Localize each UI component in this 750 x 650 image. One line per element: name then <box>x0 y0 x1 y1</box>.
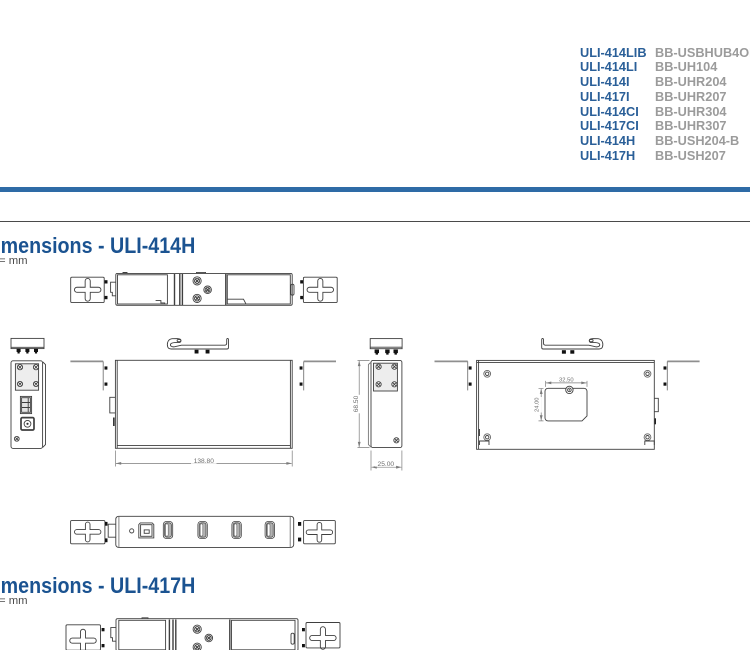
svg-text:138.80: 138.80 <box>194 458 215 465</box>
svg-text:32.50: 32.50 <box>559 378 574 384</box>
svg-text:24.00: 24.00 <box>535 397 541 412</box>
svg-text:25.00: 25.00 <box>378 461 395 468</box>
svg-text:68.50: 68.50 <box>353 395 360 412</box>
